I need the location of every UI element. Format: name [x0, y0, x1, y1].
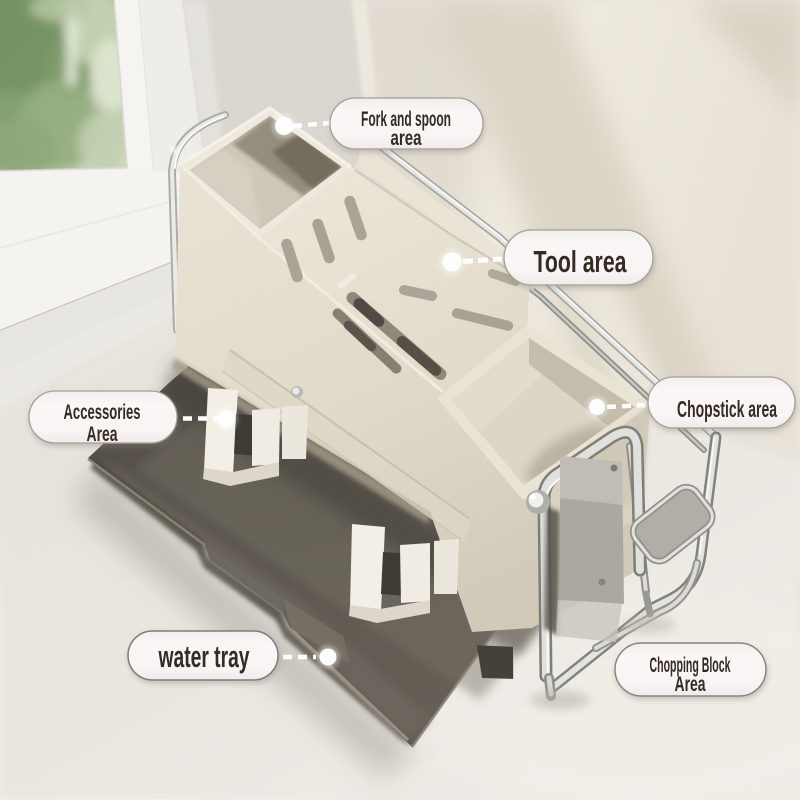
svg-text:Tool area: Tool area	[534, 244, 628, 279]
svg-text:Chopstick area: Chopstick area	[677, 396, 777, 422]
svg-text:Area: Area	[87, 423, 118, 446]
svg-text:area: area	[391, 127, 422, 150]
svg-text:Area: Area	[675, 673, 706, 696]
svg-text:water tray: water tray	[158, 639, 250, 674]
svg-text:Accessories: Accessories	[64, 401, 141, 424]
